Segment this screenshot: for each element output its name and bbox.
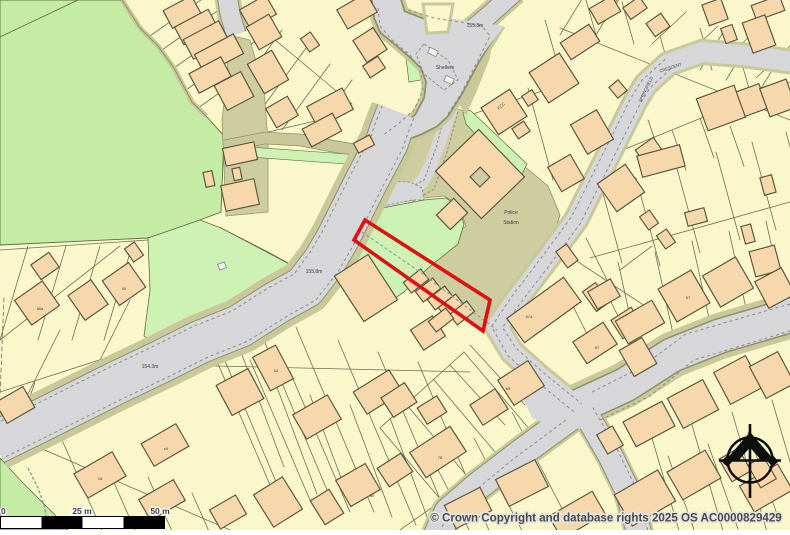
svg-text:Station: Station bbox=[503, 220, 519, 226]
svg-text:18: 18 bbox=[98, 477, 102, 481]
svg-text:67: 67 bbox=[595, 345, 600, 350]
svg-text:67a: 67a bbox=[526, 314, 533, 319]
svg-text:78: 78 bbox=[438, 455, 443, 460]
svg-text:57: 57 bbox=[686, 295, 691, 300]
svg-text:69: 69 bbox=[506, 386, 511, 391]
svg-text:85: 85 bbox=[370, 494, 374, 498]
svg-text:0: 0 bbox=[1, 506, 6, 516]
svg-text:155.8m: 155.8m bbox=[467, 23, 484, 29]
svg-text:c9: c9 bbox=[164, 447, 168, 451]
svg-text:86a: 86a bbox=[37, 307, 44, 311]
svg-text:© Crown Copyright and database: © Crown Copyright and database rights 20… bbox=[430, 512, 782, 525]
svg-text:155.8m: 155.8m bbox=[306, 269, 323, 275]
svg-text:50 m: 50 m bbox=[150, 506, 170, 516]
svg-text:25 m: 25 m bbox=[72, 506, 92, 516]
svg-text:Shelters: Shelters bbox=[436, 65, 455, 71]
svg-text:Police: Police bbox=[504, 210, 518, 216]
svg-text:154.3m: 154.3m bbox=[142, 364, 159, 370]
svg-text:90: 90 bbox=[122, 286, 127, 291]
svg-text:63: 63 bbox=[274, 369, 278, 373]
